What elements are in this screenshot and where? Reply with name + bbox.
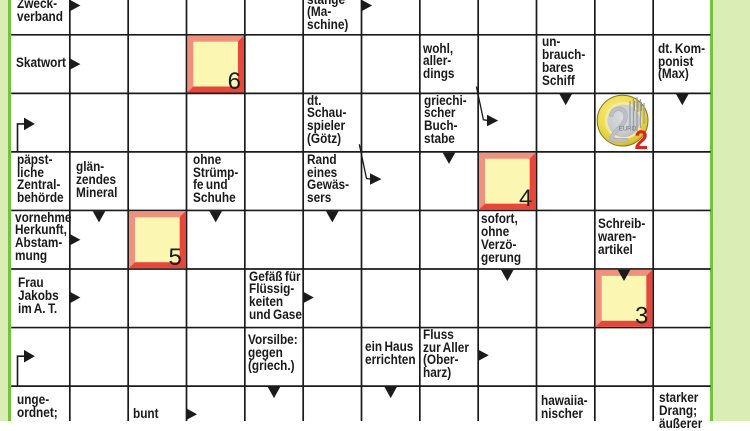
svg-text:2: 2 bbox=[607, 97, 630, 153]
svg-text:4: 4 bbox=[519, 185, 532, 212]
svg-text:3: 3 bbox=[635, 302, 648, 329]
svg-text:6: 6 bbox=[228, 68, 241, 95]
svg-text:5: 5 bbox=[169, 244, 182, 271]
svg-text:2: 2 bbox=[635, 125, 649, 155]
